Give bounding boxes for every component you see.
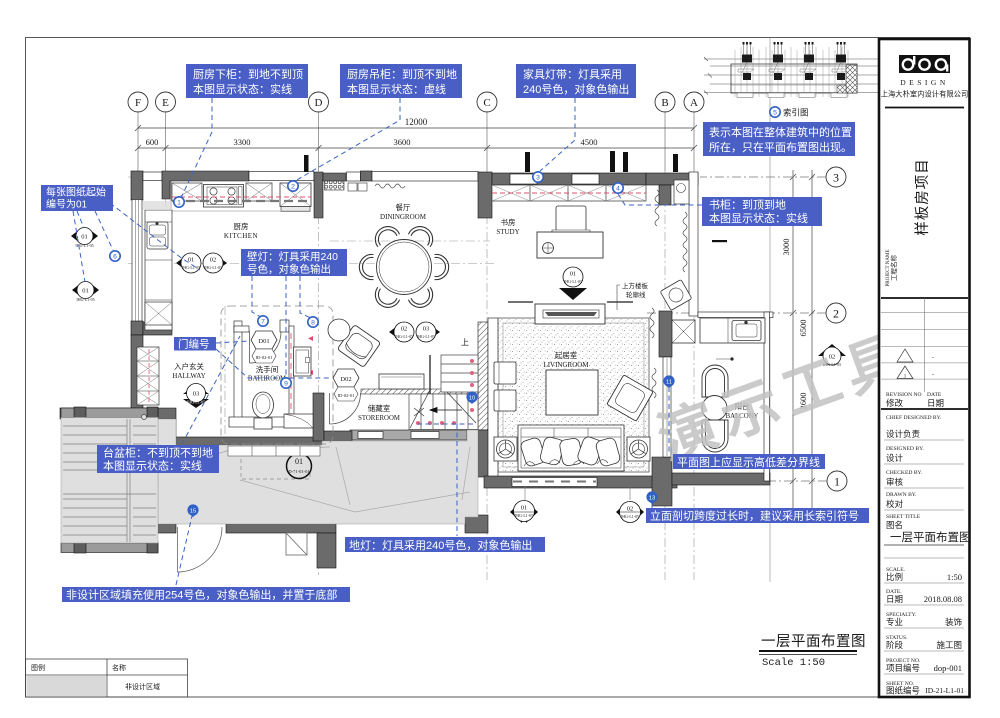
svg-text:IHG-L1-05: IHG-L1-05 [76,297,94,302]
svg-text:一层平面布置图: 一层平面布置图 [761,633,866,650]
svg-text:03: 03 [193,391,200,398]
svg-text:索引图: 索引图 [783,108,809,118]
svg-text:DRAWN BY.: DRAWN BY. [886,492,917,498]
svg-text:DININGROOM: DININGROOM [380,213,427,221]
svg-text:E: E [162,97,169,109]
svg-text:厨房: 厨房 [234,221,249,231]
svg-text:CHIEF DESIGNED BY.: CHIEF DESIGNED BY. [886,415,942,421]
svg-text:02: 02 [401,326,408,333]
svg-text:15: 15 [190,508,196,514]
svg-text:图纸编号: 图纸编号 [886,686,920,696]
svg-text:3: 3 [536,175,540,182]
svg-text:A: A [690,97,698,109]
svg-text:Scale 1:50: Scale 1:50 [762,657,825,669]
svg-text:台盆柜：不到顶不到地: 台盆柜：不到顶不到地 [103,446,213,460]
svg-text:IHG-L1-05: IHG-L1-05 [621,514,639,519]
svg-text:DESIGN: DESIGN [900,78,949,87]
svg-text:非设计区域: 非设计区域 [125,682,160,691]
svg-text:校对: 校对 [886,499,904,509]
svg-text:4: 4 [616,186,620,193]
svg-text:2: 2 [833,307,839,321]
svg-text:厨房下柜：到地不到顶: 厨房下柜：到地不到顶 [193,68,303,81]
svg-text:240号色，对象色输出: 240号色，对象色输出 [523,82,629,96]
svg-text:书房: 书房 [501,217,516,227]
svg-text:01: 01 [81,234,88,241]
svg-text:装饰: 装饰 [945,617,963,627]
svg-text:3: 3 [833,171,839,185]
svg-text:修改: 修改 [886,398,904,408]
svg-text:02: 02 [210,257,217,264]
svg-text:12000: 12000 [405,117,428,127]
svg-text:3300: 3300 [234,137,251,147]
svg-text:IHG-L1-05: IHG-L1-05 [75,243,93,248]
svg-text:项目编号: 项目编号 [886,663,920,673]
svg-text:CHECKED BY.: CHECKED BY. [886,470,923,476]
svg-text:8: 8 [311,320,315,327]
svg-text:ID-02-01: ID-02-01 [337,393,355,398]
svg-text:地灯：灯具采用240号色，对象色输出: 地灯：灯具采用240号色，对象色输出 [349,538,532,552]
svg-text:IHG-L1-05: IHG-L1-05 [204,265,222,270]
svg-text:厨房吊柜：到顶不到地: 厨房吊柜：到顶不到地 [347,68,457,81]
svg-text:上: 上 [461,338,469,347]
svg-text:图名: 图名 [886,520,903,530]
svg-text:1: 1 [834,475,840,489]
svg-text:.: . [903,356,904,361]
svg-text:01: 01 [82,288,89,295]
svg-text:STOREROOM: STOREROOM [358,415,400,422]
svg-text:9: 9 [284,381,288,388]
svg-text:门编号: 门编号 [178,338,210,351]
svg-text:6500: 6500 [798,320,808,337]
svg-text:本图显示状态：虚线: 本图显示状态：虚线 [347,82,446,96]
svg-text:1:50: 1:50 [947,572,962,582]
svg-text:上海大朴室内设计有限公司: 上海大朴室内设计有限公司 [881,90,969,99]
svg-text:01: 01 [570,271,577,278]
svg-text:IHG-L1-05: IHG-L1-05 [187,400,205,405]
svg-text:餐厅: 餐厅 [396,203,411,212]
svg-text:入户玄关: 入户玄关 [174,361,204,371]
svg-text:洗手间: 洗手间 [256,364,279,374]
svg-text:01: 01 [295,457,303,466]
svg-text:13: 13 [649,495,655,501]
svg-text:DESIGNED BY.: DESIGNED BY. [886,446,924,452]
svg-text:表示本图在整体建筑中的位置: 表示本图在整体建筑中的位置 [709,125,852,139]
svg-text:6: 6 [113,254,117,261]
svg-text:IHG-L1-05: IHG-L1-05 [417,334,435,339]
svg-text:轮廓线: 轮廓线 [626,290,646,299]
svg-text:设计负责: 设计负责 [886,429,921,439]
svg-text:D: D [315,97,323,109]
svg-text:01: 01 [521,505,528,512]
svg-text:C: C [483,97,490,109]
svg-text:11: 11 [666,379,672,385]
svg-text:2018.08.08: 2018.08.08 [924,594,962,604]
svg-text:工程名称: 工程名称 [889,255,898,282]
svg-text:壁灯：灯具采用240: 壁灯：灯具采用240 [247,250,338,263]
svg-text:5: 5 [773,110,777,117]
svg-text:专业: 专业 [886,617,903,627]
svg-text:本图显示状态：实线: 本图显示状态：实线 [193,82,292,96]
svg-text:1: 1 [177,200,181,207]
svg-text:D02: D02 [340,376,351,383]
svg-text:立面剖切跨度过长时，建议采用长索引符号: 立面剖切跨度过长时，建议采用长索引符号 [650,509,859,523]
svg-text:平面图上应显示高低差分界线: 平面图上应显示高低差分界线 [677,455,820,469]
svg-text:日期: 日期 [886,594,903,604]
svg-text:IHG-L1-05: IHG-L1-05 [564,279,582,284]
svg-text:D01: D01 [258,338,269,345]
svg-text:书柜：到顶到地: 书柜：到顶到地 [709,199,786,212]
svg-text:阶段: 阶段 [886,640,904,650]
svg-text:设计: 设计 [886,453,904,463]
svg-text:家具灯带：灯具采用: 家具灯带：灯具采用 [523,67,622,81]
svg-text:IHG-L1-05: IHG-L1-05 [515,513,533,518]
svg-text:日期: 日期 [927,398,944,408]
svg-text:HALLWAY: HALLWAY [172,372,205,380]
svg-text:ID-21-L1-01: ID-21-L1-01 [925,686,964,695]
svg-text:4500: 4500 [581,137,598,147]
svg-text:储藏室: 储藏室 [368,403,391,413]
svg-text:02: 02 [627,506,634,513]
svg-text:3600: 3600 [394,137,411,147]
svg-text:-: - [932,372,934,378]
svg-text:审核: 审核 [886,477,904,487]
svg-text:一层平面布置图: 一层平面布置图 [890,531,971,544]
svg-text:-: - [932,355,934,361]
svg-text:图例: 图例 [31,663,45,672]
svg-text:D-71-01-01: D-71-01-01 [288,469,309,474]
svg-text:2: 2 [291,184,295,191]
svg-text:IHG-L1-05: IHG-L1-05 [395,334,413,339]
svg-text:STUDY: STUDY [496,228,519,236]
svg-text:01: 01 [188,257,195,264]
svg-text:KITCHEN: KITCHEN [224,232,258,240]
svg-text:编号为01: 编号为01 [46,198,88,211]
svg-text:每张图纸起始: 每张图纸起始 [46,186,106,199]
svg-text:LIVINGROOM: LIVINGROOM [543,361,589,369]
svg-text:600: 600 [146,137,159,147]
svg-text:号色，对象色输出: 号色，对象色输出 [247,263,331,276]
svg-text:施工图: 施工图 [936,640,962,650]
svg-text:本图显示状态：实线: 本图显示状态：实线 [103,459,202,473]
svg-text:所在，只在平面布置图出现。: 所在，只在平面布置图出现。 [709,140,852,154]
svg-text:ID-02-01: ID-02-01 [255,355,273,360]
svg-text:非设计区域填充使用254号色，对象色输出，并置于底部: 非设计区域填充使用254号色，对象色输出，并置于底部 [66,588,337,602]
svg-text:10: 10 [469,395,475,401]
svg-text:dop-001: dop-001 [934,663,962,673]
svg-text:起居室: 起居室 [555,350,578,360]
svg-text:F: F [135,97,141,109]
svg-text:B: B [661,97,668,109]
svg-text:本图显示状态：实线: 本图显示状态：实线 [709,211,808,225]
svg-text:上方楼板: 上方楼板 [622,281,649,290]
svg-text:03: 03 [423,326,430,333]
svg-text:名称: 名称 [112,663,126,672]
svg-text:3000: 3000 [781,239,791,256]
svg-text:IHG-L1-05: IHG-L1-05 [182,265,200,270]
svg-text:7: 7 [261,319,265,326]
svg-text:样板房项目: 样板房项目 [913,158,931,236]
svg-text:比例: 比例 [886,572,903,582]
